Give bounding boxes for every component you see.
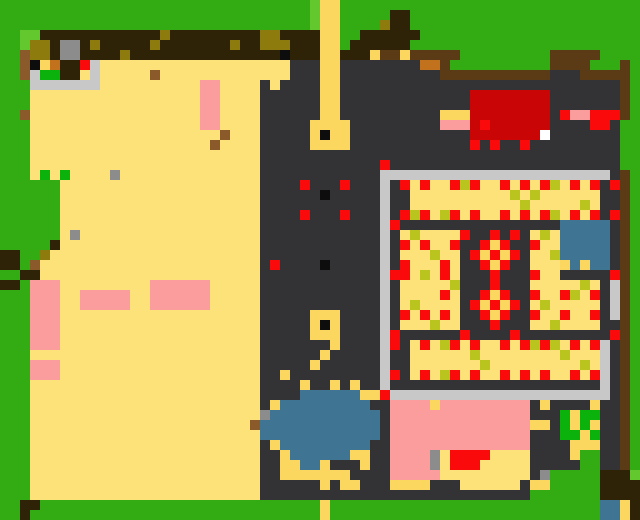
map-tile-dark-plaza-ground xyxy=(280,200,290,210)
map-tile-sand-field xyxy=(240,360,250,370)
map-tile-dark-brown-wood xyxy=(400,30,410,40)
map-tile-dark-plaza-ground xyxy=(260,80,270,90)
map-tile-dark-plaza-ground xyxy=(280,290,290,300)
map-tile-dark-brown-wood xyxy=(630,500,640,510)
map-tile-water xyxy=(560,230,570,240)
map-tile-dark-plaza-ground xyxy=(430,120,440,130)
map-tile-dark-plaza-ground xyxy=(550,80,560,90)
map-tile-pink-roof xyxy=(460,400,470,410)
map-tile-dark-plaza-ground xyxy=(470,150,480,160)
map-tile-sand-field xyxy=(560,200,570,210)
map-tile-sand-field xyxy=(530,280,540,290)
map-tile-dark-plaza-ground xyxy=(610,350,620,360)
map-tile-sand-field xyxy=(220,310,230,320)
map-tile-sand-field xyxy=(70,450,80,460)
map-tile-sand-field xyxy=(90,90,100,100)
map-tile-sand-field xyxy=(80,430,90,440)
map-tile-sand-field xyxy=(480,350,490,360)
map-tile-sand-field xyxy=(210,230,220,240)
map-tile-dark-plaza-ground xyxy=(290,220,300,230)
map-tile-sand-field xyxy=(170,70,180,80)
map-tile-water xyxy=(280,420,290,430)
map-tile-dark-plaza-ground xyxy=(360,190,370,200)
map-tile-dark-brown-wood xyxy=(250,50,260,60)
map-tile-dark-plaza-ground xyxy=(550,90,560,100)
map-tile-sand-field xyxy=(200,320,210,330)
map-tile-dark-brown-wood xyxy=(90,30,100,40)
map-tile-sand-field xyxy=(50,170,60,180)
map-tile-sand-field xyxy=(190,170,200,180)
map-tile-pink-roof xyxy=(110,290,120,300)
map-tile-dark-plaza-ground xyxy=(290,210,300,220)
map-tile-sand-field xyxy=(530,230,540,240)
map-tile-sand-field xyxy=(160,130,170,140)
map-tile-dark-brown-wood xyxy=(60,60,70,70)
map-tile-sand-field xyxy=(250,330,260,340)
map-tile-sand-field xyxy=(40,160,50,170)
map-tile-sand-field xyxy=(40,430,50,440)
map-tile-dark-plaza-ground xyxy=(610,390,620,400)
map-tile-sand-field xyxy=(220,370,230,380)
map-tile-sand-field xyxy=(70,180,80,190)
map-tile-sand-field xyxy=(250,190,260,200)
map-tile-sand-field xyxy=(210,150,220,160)
map-tile-dark-plaza-ground xyxy=(340,100,350,110)
map-tile-sand-field xyxy=(110,70,120,80)
map-tile-sand-field xyxy=(570,300,580,310)
map-tile-sand-field xyxy=(230,320,240,330)
map-tile-dark-plaza-ground xyxy=(530,430,540,440)
map-tile-red-marker xyxy=(610,110,620,120)
map-tile-light-grass xyxy=(310,10,320,20)
map-tile-water xyxy=(570,250,580,260)
map-tile-dark-plaza-ground xyxy=(350,360,360,370)
map-tile-dark-plaza-ground xyxy=(540,80,550,90)
map-tile-dark-plaza-ground xyxy=(500,220,510,230)
map-tile-sand-field xyxy=(460,370,470,380)
game-map-screenshot[interactable] xyxy=(0,0,640,520)
map-tile-sand-field xyxy=(170,80,180,90)
map-tile-brown-fence xyxy=(620,310,630,320)
map-tile-olive-crop-speckle xyxy=(430,320,440,330)
map-tile-dark-plaza-ground xyxy=(340,260,350,270)
map-tile-pink-roof xyxy=(440,400,450,410)
map-tile-sand-field xyxy=(130,410,140,420)
map-tile-olive-thatch xyxy=(40,50,50,60)
map-tile-dark-plaza-ground xyxy=(370,110,380,120)
map-tile-dark-plaza-ground xyxy=(260,480,270,490)
map-tile-yellow-path xyxy=(320,30,330,40)
map-tile-pink-roof xyxy=(490,440,500,450)
map-tile-dark-plaza-ground xyxy=(380,120,390,130)
map-tile-sand-field xyxy=(240,390,250,400)
map-tile-dark-brown-wood xyxy=(250,30,260,40)
map-tile-pink-roof xyxy=(30,320,40,330)
map-tile-water xyxy=(340,400,350,410)
map-tile-dark-brown-wood xyxy=(250,40,260,50)
map-tile-sand-field xyxy=(130,160,140,170)
map-tile-dark-plaza-ground xyxy=(290,380,300,390)
map-tile-dark-plaza-ground xyxy=(530,400,540,410)
map-tile-red-marker xyxy=(490,280,500,290)
map-tile-dark-plaza-ground xyxy=(470,260,480,270)
map-tile-yellow-path xyxy=(490,310,500,320)
map-tile-sand-field xyxy=(70,360,80,370)
map-tile-dark-plaza-ground xyxy=(380,440,390,450)
map-tile-sand-field xyxy=(40,90,50,100)
map-tile-silver-wall xyxy=(400,170,410,180)
map-tile-sand-field xyxy=(60,470,70,480)
map-tile-sand-field xyxy=(150,400,160,410)
map-tile-yellow-path xyxy=(330,330,340,340)
map-tile-silver-wall xyxy=(420,390,430,400)
map-tile-dark-plaza-ground xyxy=(280,300,290,310)
map-tile-water xyxy=(560,250,570,260)
map-tile-dark-plaza-ground xyxy=(290,260,300,270)
map-tile-sand-field xyxy=(240,310,250,320)
map-tile-dark-brown-wood xyxy=(310,40,320,50)
map-tile-brown-debris xyxy=(20,50,30,60)
map-tile-dark-plaza-ground xyxy=(290,360,300,370)
map-tile-sand-field xyxy=(170,190,180,200)
map-tile-sand-field xyxy=(90,410,100,420)
map-tile-dark-plaza-ground xyxy=(280,130,290,140)
map-tile-water xyxy=(570,240,580,250)
map-tile-yellow-path xyxy=(340,470,350,480)
map-tile-brown-fence xyxy=(460,70,470,80)
map-tile-sand-field xyxy=(580,320,590,330)
map-tile-dark-plaza-ground xyxy=(370,140,380,150)
map-tile-pink-roof xyxy=(200,120,210,130)
map-tile-dark-plaza-ground xyxy=(400,350,410,360)
map-tile-red-roof-building xyxy=(500,120,510,130)
map-tile-sand-field xyxy=(490,460,500,470)
map-tile-red-marker xyxy=(480,450,490,460)
map-tile-dark-plaza-ground xyxy=(260,470,270,480)
map-tile-sand-field xyxy=(550,260,560,270)
map-tile-dark-brown-wood xyxy=(30,500,40,510)
map-tile-sand-field xyxy=(190,450,200,460)
map-tile-sand-field xyxy=(170,210,180,220)
map-tile-dark-plaza-ground xyxy=(450,160,460,170)
map-tile-sand-field xyxy=(570,280,580,290)
map-tile-sand-field xyxy=(190,200,200,210)
map-tile-sand-field xyxy=(110,310,120,320)
map-tile-red-marker xyxy=(490,230,500,240)
map-tile-yellow-path xyxy=(480,300,490,310)
map-tile-sand-field xyxy=(220,220,230,230)
map-tile-dark-plaza-ground xyxy=(430,220,440,230)
map-tile-bright-green-bush xyxy=(50,70,60,80)
map-tile-sand-field xyxy=(60,100,70,110)
map-tile-sand-field xyxy=(70,420,80,430)
map-tile-silver-wall xyxy=(30,80,40,90)
map-tile-dark-plaza-ground xyxy=(430,480,440,490)
map-tile-sand-field xyxy=(200,370,210,380)
map-tile-sand-field xyxy=(50,480,60,490)
map-tile-sand-field xyxy=(100,340,110,350)
map-tile-red-marker xyxy=(500,340,510,350)
map-tile-dark-plaza-ground xyxy=(310,150,320,160)
map-tile-sand-field xyxy=(240,440,250,450)
map-tile-dark-plaza-ground xyxy=(600,130,610,140)
map-tile-sand-field xyxy=(420,230,430,240)
map-tile-sand-field xyxy=(60,430,70,440)
map-tile-sand-field xyxy=(170,440,180,450)
map-tile-sand-field xyxy=(150,200,160,210)
map-tile-dark-brown-wood xyxy=(60,30,70,40)
map-tile-yellow-path xyxy=(310,330,320,340)
map-tile-sand-field xyxy=(240,410,250,420)
map-tile-sand-field xyxy=(200,490,210,500)
map-tile-red-marker xyxy=(400,270,410,280)
map-tile-sand-field xyxy=(180,460,190,470)
map-tile-red-roof-building xyxy=(490,120,500,130)
map-tile-dark-plaza-ground xyxy=(460,290,470,300)
map-tile-sand-field xyxy=(120,60,130,70)
map-tile-sand-field xyxy=(130,310,140,320)
map-tile-dark-plaza-ground xyxy=(470,270,480,280)
map-tile-sand-field xyxy=(200,430,210,440)
map-tile-pink-roof xyxy=(50,340,60,350)
map-tile-sand-field xyxy=(220,140,230,150)
map-tile-sand-field xyxy=(180,380,190,390)
map-tile-yellow-path xyxy=(320,20,330,30)
map-tile-pink-roof xyxy=(440,120,450,130)
map-tile-sand-field xyxy=(430,310,440,320)
map-tile-water xyxy=(300,410,310,420)
map-tile-dark-plaza-ground xyxy=(450,80,460,90)
map-tile-red-roof-building xyxy=(470,100,480,110)
map-tile-water xyxy=(580,220,590,230)
map-tile-pink-roof xyxy=(440,430,450,440)
map-tile-dark-brown-wood xyxy=(310,50,320,60)
map-tile-sand-field xyxy=(80,450,90,460)
map-tile-sand-field xyxy=(160,320,170,330)
map-tile-pink-roof xyxy=(450,430,460,440)
map-tile-sand-field xyxy=(80,470,90,480)
map-tile-dark-plaza-ground xyxy=(510,240,520,250)
map-tile-dark-plaza-ground xyxy=(270,390,280,400)
map-tile-dark-plaza-ground xyxy=(370,130,380,140)
map-tile-dark-plaza-ground xyxy=(260,210,270,220)
map-tile-dark-plaza-ground xyxy=(610,420,620,430)
map-tile-sand-field xyxy=(50,390,60,400)
map-tile-light-grass xyxy=(20,30,30,40)
map-tile-brown-debris xyxy=(20,60,30,70)
map-tile-pink-roof xyxy=(580,110,590,120)
map-tile-dark-plaza-ground xyxy=(330,370,340,380)
map-tile-sand-field xyxy=(100,80,110,90)
map-tile-dark-brown-wood xyxy=(230,50,240,60)
map-tile-sand-field xyxy=(30,410,40,420)
map-tile-red-marker xyxy=(470,450,480,460)
map-tile-dark-plaza-ground xyxy=(430,380,440,390)
map-tile-red-marker xyxy=(420,310,430,320)
map-tile-sand-field xyxy=(210,430,220,440)
map-tile-red-marker xyxy=(560,110,570,120)
map-tile-dark-plaza-ground xyxy=(310,190,320,200)
map-tile-silver-wall xyxy=(610,300,620,310)
map-tile-sand-field xyxy=(140,350,150,360)
map-tile-sand-field xyxy=(420,290,430,300)
map-tile-sand-field xyxy=(220,80,230,90)
map-tile-dark-plaza-ground xyxy=(310,210,320,220)
map-tile-pink-roof xyxy=(30,300,40,310)
map-tile-dark-plaza-ground xyxy=(260,320,270,330)
map-tile-red-marker xyxy=(420,180,430,190)
map-tile-dark-brown-wood xyxy=(150,50,160,60)
map-tile-sand-field xyxy=(160,260,170,270)
map-tile-red-marker xyxy=(340,210,350,220)
map-tile-red-roof-building xyxy=(520,110,530,120)
map-tile-silver-wall xyxy=(380,280,390,290)
map-tile-sand-field xyxy=(140,170,150,180)
map-tile-silver-wall xyxy=(430,170,440,180)
map-tile-olive-crop-speckle xyxy=(410,210,420,220)
map-tile-silver-wall xyxy=(380,290,390,300)
map-tile-sand-field xyxy=(250,300,260,310)
map-tile-sand-field xyxy=(40,130,50,140)
map-tile-dark-plaza-ground xyxy=(390,130,400,140)
map-tile-sand-field xyxy=(70,430,80,440)
map-tile-dark-plaza-ground xyxy=(600,280,610,290)
map-tile-sand-field xyxy=(130,320,140,330)
map-tile-sand-field xyxy=(220,350,230,360)
map-tile-gray-stone xyxy=(60,50,70,60)
map-tile-dark-brown-wood xyxy=(620,480,630,490)
map-tile-dark-plaza-ground xyxy=(500,160,510,170)
map-tile-yellow-path xyxy=(330,0,340,10)
map-tile-silver-wall xyxy=(600,340,610,350)
map-tile-brown-fence xyxy=(620,90,630,100)
map-tile-sand-field xyxy=(70,130,80,140)
map-tile-red-roof-building xyxy=(520,90,530,100)
map-tile-water xyxy=(300,450,310,460)
map-tile-pink-roof xyxy=(170,300,180,310)
map-tile-sand-field xyxy=(150,480,160,490)
world-map-canvas[interactable] xyxy=(0,0,640,520)
map-tile-dark-plaza-ground xyxy=(290,370,300,380)
map-tile-sand-field xyxy=(100,150,110,160)
map-tile-dark-brown-wood xyxy=(140,30,150,40)
map-tile-sand-field xyxy=(200,480,210,490)
map-tile-dark-plaza-ground xyxy=(300,70,310,80)
map-tile-yellow-path xyxy=(430,400,440,410)
map-tile-sand-field xyxy=(240,190,250,200)
map-tile-sand-field xyxy=(180,200,190,210)
map-tile-sand-field xyxy=(180,330,190,340)
map-tile-dark-brown-wood xyxy=(600,480,610,490)
map-tile-brown-fence xyxy=(620,420,630,430)
map-tile-sand-field xyxy=(70,400,80,410)
map-tile-brown-fence xyxy=(620,430,630,440)
map-tile-sand-field xyxy=(420,190,430,200)
map-tile-dark-plaza-ground xyxy=(380,420,390,430)
map-tile-dark-plaza-ground xyxy=(600,330,610,340)
map-tile-dark-plaza-ground xyxy=(370,340,380,350)
map-tile-water xyxy=(360,400,370,410)
map-tile-sand-field xyxy=(250,270,260,280)
map-tile-yellow-path xyxy=(370,50,380,60)
map-tile-sand-field xyxy=(170,90,180,100)
map-tile-dark-plaza-ground xyxy=(580,270,590,280)
map-tile-sand-field xyxy=(170,110,180,120)
map-tile-red-marker xyxy=(440,290,450,300)
map-tile-sand-field xyxy=(50,150,60,160)
map-tile-sand-field xyxy=(70,470,80,480)
map-tile-sand-field xyxy=(60,280,70,290)
map-tile-dark-plaza-ground xyxy=(300,320,310,330)
map-tile-sand-field xyxy=(450,300,460,310)
map-tile-sand-field xyxy=(150,370,160,380)
map-tile-pink-roof xyxy=(200,80,210,90)
map-tile-sand-field xyxy=(100,410,110,420)
map-tile-sand-field xyxy=(130,80,140,90)
map-tile-yellow-path xyxy=(370,390,380,400)
map-tile-yellow-path xyxy=(330,30,340,40)
map-tile-red-roof-building xyxy=(510,120,520,130)
map-tile-dark-plaza-ground xyxy=(460,150,470,160)
map-tile-pink-roof xyxy=(410,450,420,460)
map-tile-yellow-path xyxy=(270,440,280,450)
map-tile-dark-plaza-ground xyxy=(260,270,270,280)
map-tile-dark-plaza-ground xyxy=(310,60,320,70)
map-tile-red-marker xyxy=(80,60,90,70)
map-tile-dark-plaza-ground xyxy=(540,330,550,340)
map-tile-sand-field xyxy=(150,410,160,420)
map-tile-sand-field xyxy=(210,290,220,300)
map-tile-water xyxy=(330,420,340,430)
map-tile-sand-field xyxy=(100,210,110,220)
map-tile-sand-field xyxy=(230,70,240,80)
map-tile-dark-plaza-ground xyxy=(390,250,400,260)
map-tile-sand-field xyxy=(180,240,190,250)
map-tile-sand-field xyxy=(250,210,260,220)
map-tile-dark-plaza-ground xyxy=(570,140,580,150)
map-tile-dark-plaza-ground xyxy=(310,480,320,490)
map-tile-dark-brown-wood xyxy=(400,40,410,50)
map-tile-sand-field xyxy=(250,250,260,260)
map-tile-dark-plaza-ground xyxy=(320,160,330,170)
map-tile-sand-field xyxy=(110,230,120,240)
map-tile-sand-field xyxy=(50,350,60,360)
map-tile-sand-field xyxy=(140,320,150,330)
map-tile-sand-field xyxy=(30,420,40,430)
map-tile-dark-plaza-ground xyxy=(290,240,300,250)
map-tile-sand-field xyxy=(560,180,570,190)
map-tile-sand-field xyxy=(30,120,40,130)
map-tile-dark-plaza-ground xyxy=(350,280,360,290)
map-tile-sand-field xyxy=(180,390,190,400)
map-tile-red-marker xyxy=(460,450,470,460)
map-tile-red-roof-building xyxy=(480,100,490,110)
map-tile-pink-roof xyxy=(40,280,50,290)
map-tile-dark-plaza-ground xyxy=(270,340,280,350)
map-tile-sand-field xyxy=(590,280,600,290)
map-tile-sand-field xyxy=(580,180,590,190)
map-tile-yellow-path xyxy=(310,360,320,370)
map-tile-dark-plaza-ground xyxy=(490,80,500,90)
map-tile-yellow-path xyxy=(490,240,500,250)
map-tile-silver-wall xyxy=(380,320,390,330)
map-tile-silver-wall xyxy=(600,360,610,370)
map-tile-dark-plaza-ground xyxy=(300,360,310,370)
map-tile-sand-field xyxy=(100,250,110,260)
map-tile-dark-plaza-ground xyxy=(410,80,420,90)
map-tile-pink-roof xyxy=(410,460,420,470)
map-tile-brown-fence xyxy=(570,50,580,60)
